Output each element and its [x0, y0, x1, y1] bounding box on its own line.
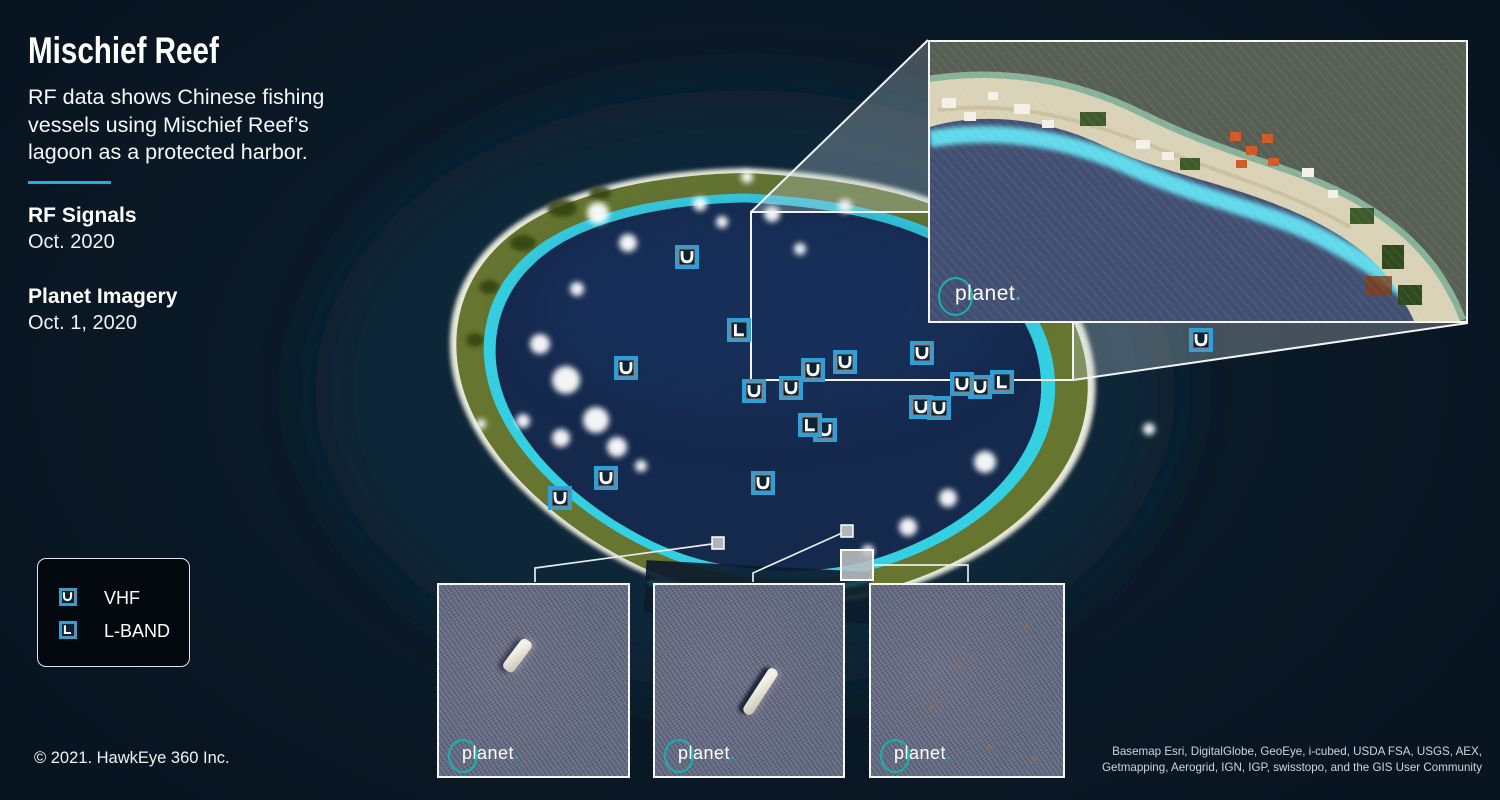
- vhf-marker[interactable]: [927, 396, 951, 420]
- legend: VHF L-BAND: [37, 558, 190, 667]
- page-title: Mischief Reef: [28, 30, 219, 72]
- vhf-marker[interactable]: [779, 376, 803, 400]
- planet-inset-ship2: planet.: [653, 583, 845, 778]
- basemap-attribution: Basemap Esri, DigitalGlobe, GeoEye, i-cu…: [1102, 744, 1482, 775]
- legend-label-vhf: VHF: [104, 588, 140, 609]
- vhf-marker[interactable]: [910, 341, 934, 365]
- copyright-text: © 2021. HawkEye 360 Inc.: [34, 749, 230, 768]
- lband-marker[interactable]: [727, 318, 751, 342]
- vhf-marker[interactable]: [1189, 328, 1213, 352]
- vhf-marker[interactable]: [950, 372, 974, 396]
- lband-marker-icon: [59, 621, 77, 639]
- vhf-marker[interactable]: [594, 466, 618, 490]
- vhf-marker[interactable]: [614, 356, 638, 380]
- planet-inset-ship1: planet.: [437, 583, 630, 778]
- sea-texture: [930, 42, 1466, 321]
- description-text: RF data shows Chinese fishing vessels us…: [28, 84, 368, 167]
- planet-imagery-heading: Planet Imagery: [28, 285, 177, 309]
- vhf-marker[interactable]: [675, 245, 699, 269]
- planet-inset-empty-sea: planet.: [869, 583, 1065, 778]
- vhf-marker[interactable]: [751, 471, 775, 495]
- accent-divider: [28, 181, 111, 184]
- vhf-marker-icon: [59, 588, 77, 606]
- rf-signals-date: Oct. 2020: [28, 231, 115, 254]
- infographic-canvas: planet. planet. planet. planet. Mischief…: [0, 0, 1500, 800]
- rf-signals-heading: RF Signals: [28, 204, 137, 228]
- vhf-marker[interactable]: [742, 379, 766, 403]
- lband-marker[interactable]: [990, 370, 1014, 394]
- fishing-vessel: [741, 666, 779, 716]
- planet-imagery-date: Oct. 1, 2020: [28, 312, 137, 335]
- vhf-marker[interactable]: [833, 350, 857, 374]
- planet-inset-main: planet.: [928, 40, 1468, 323]
- vhf-marker[interactable]: [801, 358, 825, 382]
- vhf-marker[interactable]: [548, 486, 572, 510]
- legend-label-lband: L-BAND: [104, 621, 170, 642]
- lband-marker[interactable]: [798, 413, 822, 437]
- fishing-vessel: [501, 637, 534, 674]
